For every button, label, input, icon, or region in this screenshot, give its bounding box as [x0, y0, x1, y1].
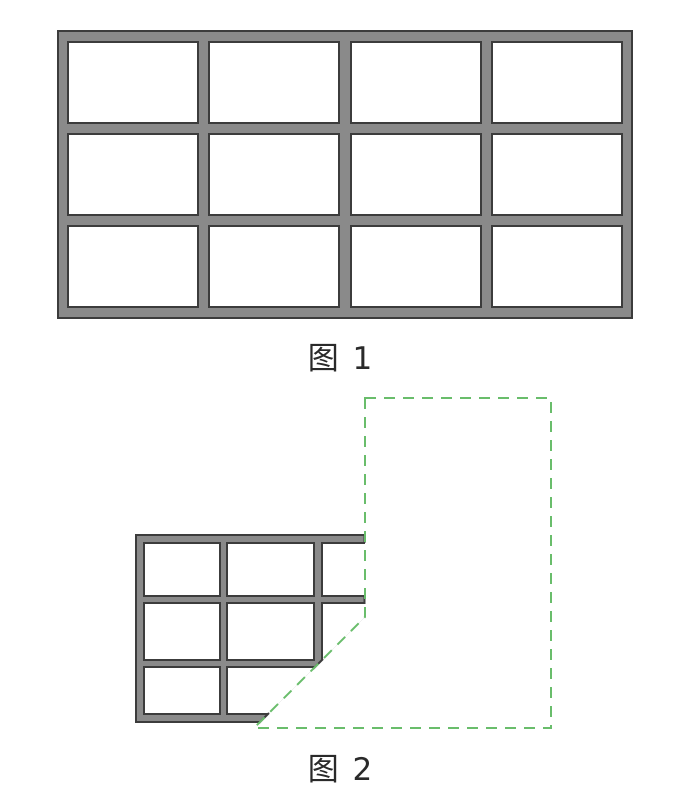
window-pane [492, 134, 622, 215]
window-pane [227, 603, 314, 660]
window-pane [351, 226, 481, 307]
window-pane [144, 543, 220, 596]
window-pane [209, 42, 339, 123]
window-pane [351, 42, 481, 123]
window-pane [68, 42, 198, 123]
window-pane [144, 667, 220, 714]
window-pane [68, 134, 198, 215]
figure2-caption: 图 2 [0, 753, 682, 787]
window-pane [144, 603, 220, 660]
window-pane [227, 543, 314, 596]
window-pane [209, 134, 339, 215]
worksheet-page: 图 1 图 2 [0, 0, 682, 800]
figure-canvas [0, 0, 682, 800]
figure2-window-grid [136, 535, 420, 722]
window-pane [492, 42, 622, 123]
window-pane [68, 226, 198, 307]
window-pane [209, 226, 339, 307]
figure1-caption: 图 1 [0, 342, 682, 376]
window-pane [351, 134, 481, 215]
window-pane [492, 226, 622, 307]
window-pane [227, 667, 314, 714]
figure1-window-grid [58, 31, 632, 318]
